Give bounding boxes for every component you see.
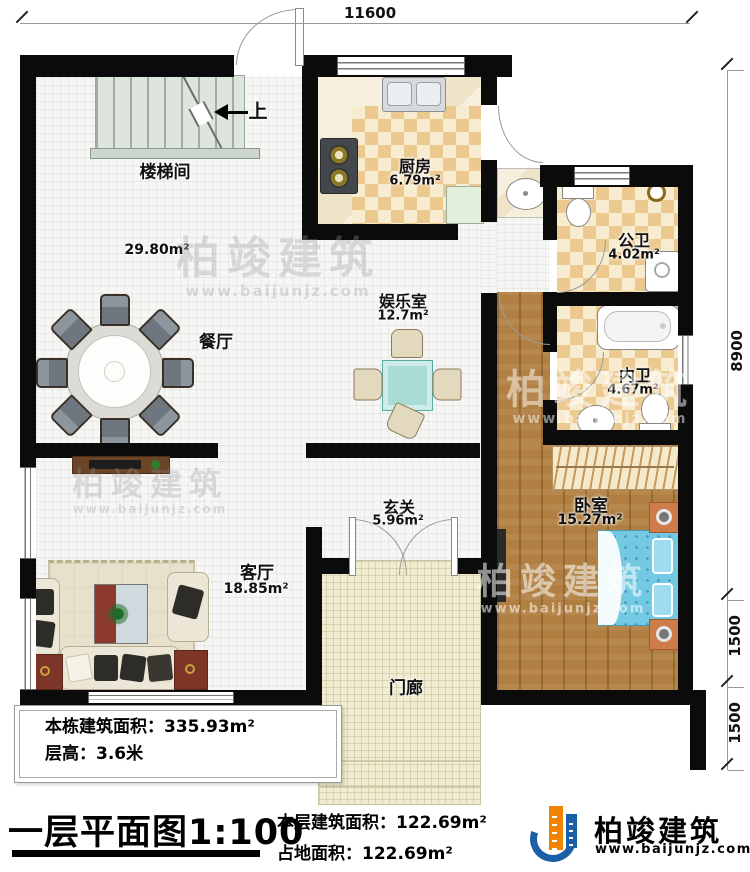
door-leaf: [451, 517, 458, 576]
dim-connector: [728, 600, 744, 601]
dimension-tick: [16, 11, 29, 24]
right-dimension-value: 1500: [726, 702, 744, 744]
door-arc: [498, 106, 543, 163]
wall: [678, 165, 693, 705]
sofa-cushion: [147, 654, 174, 682]
wall: [481, 690, 693, 705]
nightstand-lamp: [656, 509, 672, 525]
room-label-staircase: 楼梯间: [140, 158, 191, 183]
wall: [306, 443, 480, 458]
bed-duvet-fold: [598, 531, 622, 625]
sofa-cushion: [119, 653, 146, 682]
bed: [597, 530, 680, 626]
plant: [105, 601, 131, 627]
top-dimension-value: 11600: [340, 4, 400, 22]
burner: [329, 145, 349, 165]
bedroom-tv: [497, 529, 506, 602]
tv: [89, 460, 141, 469]
dining-table-center: [104, 361, 125, 382]
wall: [481, 160, 497, 222]
nightstand: [649, 619, 681, 650]
passage-floor-patch: [481, 222, 497, 293]
dining-chair: [36, 358, 68, 388]
porch-step-line: [318, 760, 481, 762]
logo-tower-orange: [549, 806, 563, 850]
floor-area-text: 本层建筑面积：122.69m²: [277, 808, 487, 839]
bathtub: [597, 305, 680, 350]
building-area-text: 本栋建筑面积：335.93m²: [45, 714, 341, 741]
room-area-living: 18.85m²: [223, 581, 288, 597]
window: [574, 167, 630, 185]
gas-stove: [320, 138, 358, 194]
area-notes: 本层建筑面积：122.69m² 占地面积：122.69m²: [277, 808, 487, 870]
dim-connector: [728, 70, 744, 71]
room-area-bedroom: 15.27m²: [557, 512, 622, 528]
corner-table-lamp: [185, 664, 195, 674]
room-area-public-bath: 4.02m²: [608, 248, 659, 263]
wall: [20, 55, 234, 77]
room-area-inner-bath: 4.67m²: [607, 383, 658, 398]
wall: [543, 430, 693, 445]
door-leaf: [295, 8, 304, 66]
building-info-box: 本栋建筑面积：335.93m² 层高：3.6米: [14, 705, 342, 783]
room-area-foyer: 5.96m²: [372, 514, 423, 529]
room-area-kitchen: 6.79m²: [389, 174, 440, 189]
toilet-bowl: [641, 393, 669, 426]
wall: [322, 558, 352, 574]
pillow: [652, 538, 673, 574]
wardrobe-rod: [556, 466, 674, 468]
sink-basin: [387, 82, 412, 106]
room-label-dining: 餐厅: [199, 328, 233, 353]
fridge: [446, 186, 484, 224]
wall: [306, 527, 322, 705]
game-chair: [433, 369, 462, 401]
tv-console: [72, 456, 170, 474]
game-chair: [354, 369, 383, 401]
pillow: [652, 583, 673, 617]
logo-icon: [530, 804, 590, 866]
sofa-cushion: [65, 653, 93, 683]
wardrobe: [552, 446, 680, 490]
washer-door: [654, 262, 670, 278]
console-plant: [151, 460, 160, 469]
nightstand: [649, 502, 681, 533]
bathtub-drain: [660, 323, 666, 329]
room-label-living: 客厅: [240, 559, 274, 584]
sofa-bottom: [60, 646, 180, 690]
wall: [543, 400, 557, 430]
sofa-cushion: [33, 589, 54, 615]
sink-basin: [416, 82, 441, 106]
inner-bath-sink-drain: [593, 418, 598, 423]
room-area-entertainment: 12.7m²: [377, 309, 428, 324]
open-area-size: 29.80m²: [124, 242, 189, 258]
nightstand-lamp: [656, 626, 672, 642]
wall: [690, 690, 706, 770]
wall: [481, 293, 497, 705]
floor-plan-page: 楼梯间 29.80m² 餐厅 厨房 6.79m² 公卫 4.02m² 娱乐室 1…: [0, 0, 750, 872]
plan-title: 一层平面图1:100: [8, 804, 304, 855]
corner-table-lamp: [40, 666, 50, 676]
corner-table: [174, 650, 208, 690]
coffee-table: [94, 584, 148, 644]
dining-chair: [162, 358, 194, 388]
room-label-porch: 门廊: [389, 674, 423, 699]
porch-step-line: [318, 786, 481, 788]
wall: [302, 77, 318, 240]
dining-chair: [100, 294, 130, 326]
window: [678, 335, 693, 385]
wall: [481, 55, 497, 105]
vanity-sink-drain: [523, 191, 528, 196]
stairs-up-label: 上: [248, 97, 267, 124]
door-leaf: [349, 517, 356, 576]
wall: [302, 224, 458, 240]
game-table: [382, 360, 433, 411]
dim-connector: [728, 687, 744, 688]
right-dimension-line: [727, 70, 728, 770]
toilet-bowl: [566, 198, 591, 227]
logo-tower-blue: [566, 814, 577, 848]
logo-website: www.baijunjz.com: [595, 842, 750, 857]
land-area-text: 占地面积：122.69m²: [277, 839, 487, 870]
door-arc: [236, 9, 299, 65]
top-dimension-line: [20, 23, 690, 24]
armchair-right: [167, 572, 209, 642]
sofa-cushion: [94, 655, 118, 681]
floor-height-text: 层高：3.6米: [45, 741, 341, 768]
wall: [543, 292, 693, 306]
right-dimension-value: 1500: [726, 615, 744, 657]
kitchen-double-sink: [382, 77, 446, 112]
wall: [543, 165, 557, 240]
dimension-tick: [721, 58, 734, 71]
game-chair: [391, 329, 423, 358]
window: [20, 598, 36, 690]
window: [337, 57, 465, 75]
up-arrow-head: [206, 104, 228, 120]
dim-connector: [728, 770, 744, 771]
title-underline: [12, 850, 260, 857]
dimension-tick: [686, 11, 699, 24]
burner: [329, 168, 349, 188]
armchair-cushion: [172, 584, 205, 620]
window: [20, 467, 36, 559]
window: [88, 692, 234, 703]
right-dimension-value: 8900: [728, 330, 746, 372]
